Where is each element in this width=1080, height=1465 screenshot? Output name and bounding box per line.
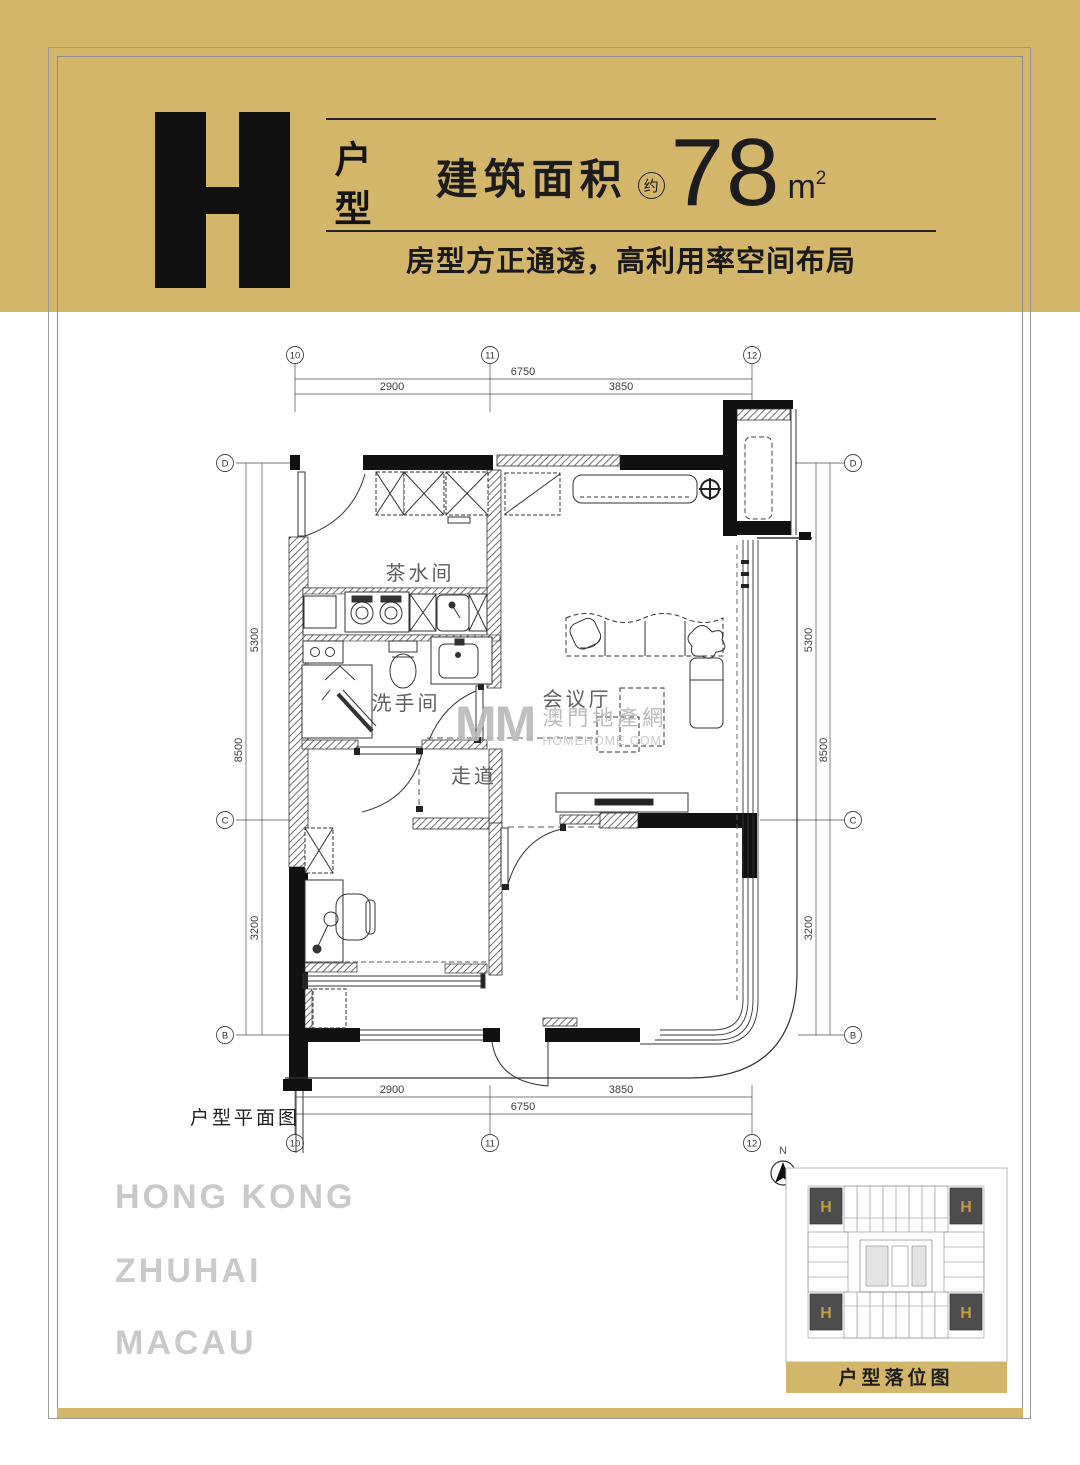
watermark: MM 澳門地產網 HOMEHOME.COM [455,702,667,748]
svg-text:3200: 3200 [803,916,815,940]
room-label-corridor: 走道 [451,765,497,788]
unit-marker-h: H [820,1305,832,1322]
unit-marker-h: H [820,1199,832,1216]
svg-text:11: 11 [485,1139,495,1150]
svg-text:D: D [850,459,857,470]
tagline: 房型方正通透，高利用率空间布局 [326,238,936,280]
svg-text:B: B [850,1031,856,1042]
watermark-site-domain: HOMEHOME.COM [542,734,667,748]
grid-bubble-row-d: D [222,459,229,470]
bottom-gold-strip [57,1408,1023,1418]
dim-left-total: 8500 [233,738,245,762]
unit-marker-h: H [960,1305,972,1322]
dim-left-lower: 3200 [249,916,261,940]
keyplan: N H H [735,1135,1020,1405]
office-furniture [303,828,487,1028]
room-label-pantry: 茶水间 [386,562,455,585]
dim-top-left: 2900 [380,381,404,393]
ceiling-fixture-icon [699,478,721,500]
north-label: N [779,1145,787,1157]
area-unit: m2 [787,168,826,207]
dimension-grid-right [760,463,844,1035]
city-label-zhuhai: ZHUHAI [115,1252,261,1291]
header-divider-top [326,118,936,120]
unit-letter-h [155,112,290,288]
city-label-hongkong: HONG KONG [115,1178,355,1217]
plan-caption: 户型平面图 [190,1107,300,1129]
svg-text:C: C [850,816,857,827]
svg-text:5300: 5300 [803,628,815,652]
svg-text:6750: 6750 [511,1101,535,1113]
svg-text:8500: 8500 [818,738,830,762]
grid-bubble-col-10: 10 [290,351,301,362]
dim-top-right: 3850 [609,381,633,393]
pantry-counter [303,588,500,641]
grid-bubble-col-12: 12 [747,351,758,362]
grid-bubble-row-b: B [222,1031,228,1042]
svg-text:10: 10 [290,1139,301,1150]
grid-bubble-col-11: 11 [485,351,495,362]
area-row: 建筑面积 约 78 m2 [326,124,936,228]
room-label-washroom: 洗手间 [372,692,441,715]
city-label-macau: MACAU [115,1324,257,1363]
svg-text:3850: 3850 [609,1084,633,1096]
flyer-page: 户型 建筑面积 约 78 m2 房型方正通透，高利用率空间布局 10 11 12… [0,0,1080,1465]
watermark-site-name: 澳門地產網 [542,702,667,732]
header-divider-bottom [326,230,936,232]
area-approx-badge: 约 [638,172,665,199]
svg-text:2900: 2900 [380,1084,404,1096]
keyplan-caption: 户型落位图 [838,1366,953,1389]
grid-bubble-row-c: C [222,816,229,827]
dim-left-upper: 5300 [249,628,261,652]
area-value: 78 [671,125,782,221]
area-label: 建筑面积 [436,146,628,207]
unit-marker-h: H [960,1199,972,1216]
dim-top-total: 6750 [511,366,535,378]
watermark-logo: MM [455,702,534,747]
wardrobe-cabinets [376,472,697,523]
